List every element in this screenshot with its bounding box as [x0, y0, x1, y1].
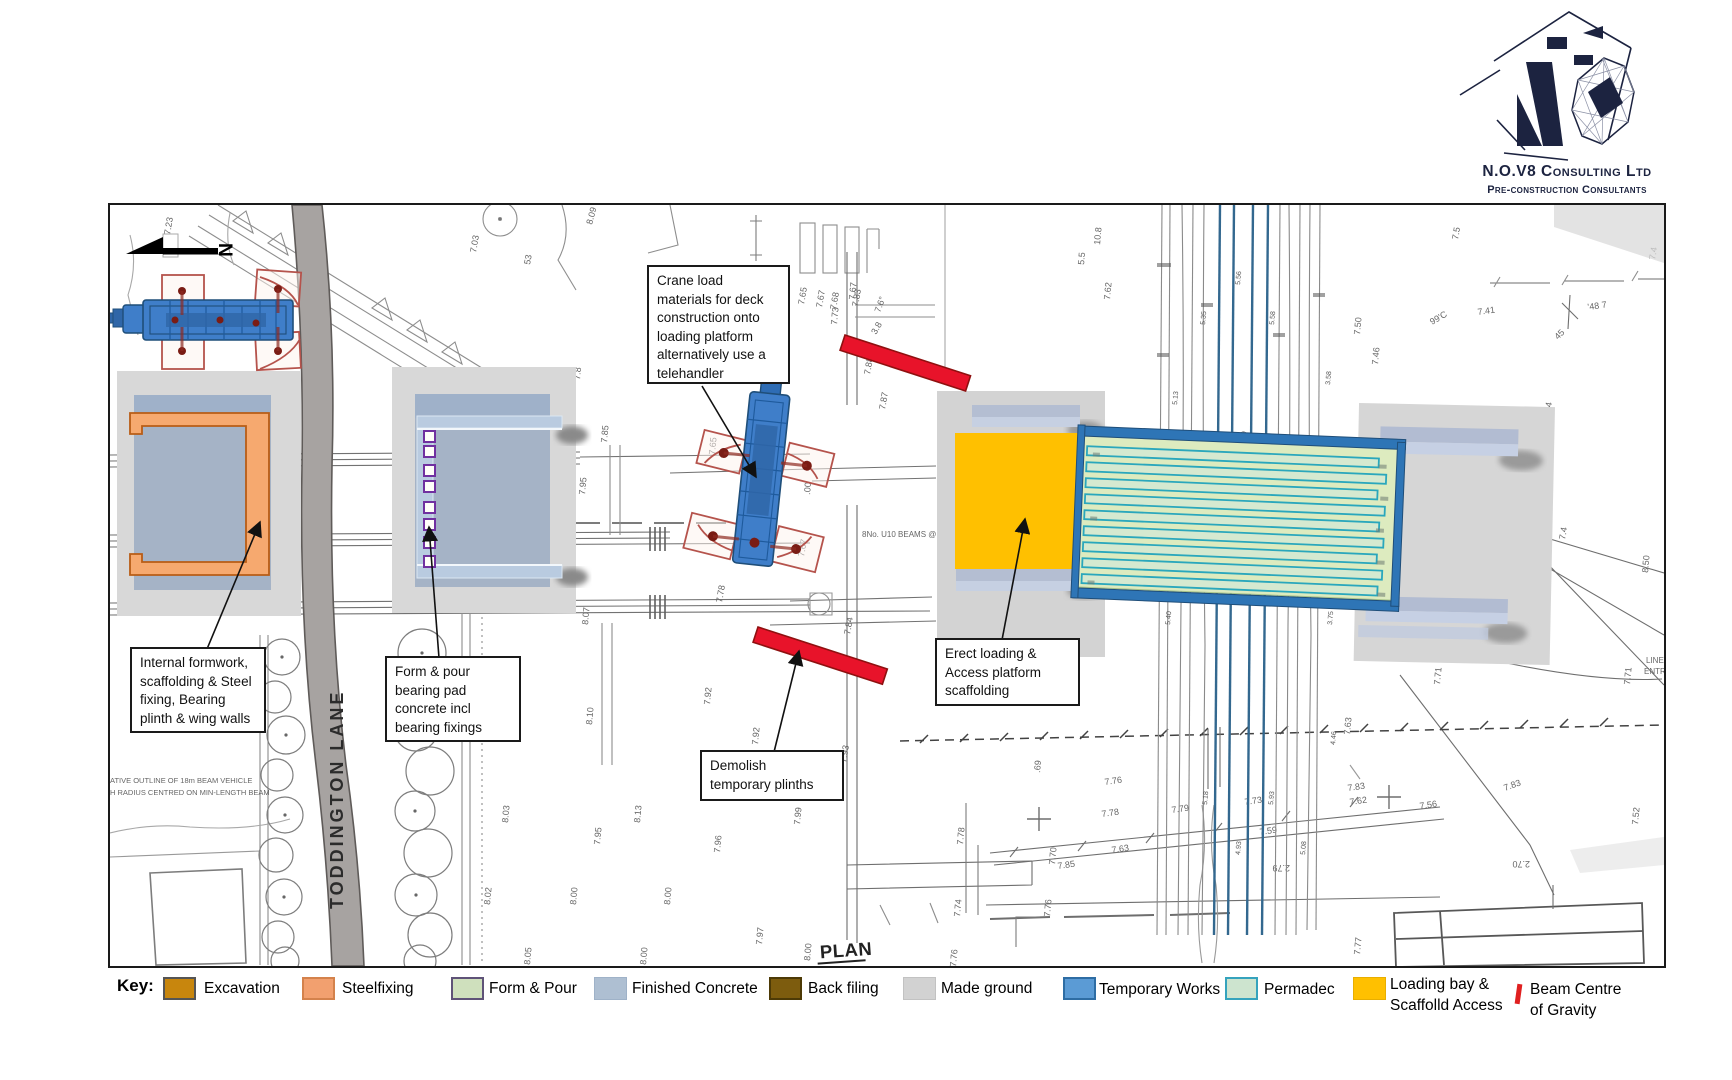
svg-text:7.78: 7.78	[955, 827, 966, 845]
svg-text:7.46: 7.46	[1370, 347, 1381, 365]
svg-text:7.85: 7.85	[1057, 859, 1076, 871]
svg-text:7.6°: 7.6°	[872, 295, 887, 314]
svg-text:5.40: 5.40	[1165, 611, 1173, 625]
svg-text:8.50: 8.50	[1640, 555, 1651, 573]
svg-text:7.83: 7.83	[1502, 777, 1522, 792]
svg-text:7.62: 7.62	[1102, 282, 1113, 300]
svg-text:7.73: 7.73	[1244, 795, 1263, 807]
svg-text:7.76: 7.76	[1042, 899, 1053, 917]
svg-text:45: 45	[1552, 327, 1566, 341]
svg-text:7.78: 7.78	[1101, 807, 1120, 819]
svg-text:7.99: 7.99	[792, 807, 803, 825]
svg-text:8.02: 8.02	[482, 887, 493, 905]
svg-text:8.13: 8.13	[632, 805, 643, 823]
svg-text:3.58: 3.58	[1325, 371, 1333, 385]
svg-text:7.76: 7.76	[1104, 775, 1123, 787]
svg-text:7.85: 7.85	[599, 425, 610, 443]
svg-text:8.00: 8.00	[568, 887, 579, 905]
svg-text:7.65: 7.65	[796, 286, 809, 305]
svg-text:5.93: 5.93	[1268, 791, 1276, 805]
svg-text:N.O.V8 Consulting Ltd: N.O.V8 Consulting Ltd	[1482, 163, 1651, 180]
svg-text:7.73: 7.73	[829, 307, 840, 325]
svg-text:3.75: 3.75	[1327, 611, 1335, 625]
svg-text:7.63: 7.63	[1111, 843, 1130, 855]
svg-text:LINE: LINE	[1646, 656, 1664, 665]
svg-text:5.35: 5.35	[1200, 311, 1208, 325]
svg-text:2.70: 2.70	[1512, 859, 1530, 869]
svg-text:7.67: 7.67	[847, 282, 858, 300]
svg-text:7.76: 7.76	[948, 949, 959, 966]
svg-text:Pre-construction Consultants: Pre-construction Consultants	[1487, 184, 1647, 196]
svg-text:7.95: 7.95	[592, 827, 603, 845]
svg-text:8.07: 8.07	[580, 607, 591, 625]
svg-text:7.4: 7.4	[1557, 526, 1569, 540]
svg-text:7.96: 7.96	[712, 835, 723, 853]
svg-text:7.03: 7.03	[468, 234, 481, 253]
svg-text:7.63: 7.63	[1342, 717, 1353, 735]
svg-text:8.00: 8.00	[802, 943, 813, 961]
svg-text:7.77: 7.77	[1352, 937, 1363, 955]
svg-text:7.71: 7.71	[1622, 667, 1633, 685]
svg-text:7.97: 7.97	[754, 927, 765, 945]
svg-text:5.18: 5.18	[1202, 791, 1210, 805]
svg-text:8.03: 8.03	[500, 805, 511, 823]
svg-text:'48 7: '48 7	[1587, 299, 1607, 312]
svg-text:7.5: 7.5	[1450, 226, 1462, 240]
svg-text:53: 53	[522, 254, 534, 266]
svg-text:7.92: 7.92	[702, 687, 713, 705]
svg-text:7.74: 7.74	[952, 899, 963, 917]
svg-text:5.08: 5.08	[1300, 841, 1308, 855]
svg-text:7.67: 7.67	[814, 289, 827, 308]
svg-text:8.00: 8.00	[638, 947, 649, 965]
svg-text:7.92: 7.92	[750, 727, 761, 745]
svg-text:8No. U10 BEAMS @ 9: 8No. U10 BEAMS @ 9	[862, 530, 944, 539]
svg-text:10.8: 10.8	[1092, 227, 1103, 245]
svg-text:ENTR: ENTR	[1644, 667, 1664, 676]
svg-text:5.5: 5.5	[1076, 252, 1087, 265]
svg-text:7.84: 7.84	[842, 616, 855, 635]
svg-text:8.09: 8.09	[584, 206, 598, 226]
svg-text:4.93: 4.93	[1235, 841, 1243, 855]
svg-text:3.8: 3.8	[869, 320, 884, 336]
svg-text:8.10: 8.10	[584, 707, 595, 725]
svg-text:7.87: 7.87	[877, 391, 890, 410]
svg-text:.69: .69	[1032, 760, 1043, 773]
svg-text:5.58: 5.58	[1269, 311, 1277, 325]
svg-text:N: N	[214, 243, 235, 257]
svg-text:H RADIUS CENTRED ON MIN-LENGTH: H RADIUS CENTRED ON MIN-LENGTH BEAM	[110, 788, 270, 797]
svg-text:7.95: 7.95	[577, 477, 588, 495]
svg-text:8.00: 8.00	[662, 887, 673, 905]
svg-text:7.71: 7.71	[1432, 667, 1443, 685]
svg-text:ATIVE OUTLINE OF 18m BEAM VEHI: ATIVE OUTLINE OF 18m BEAM VEHICLE	[110, 776, 252, 785]
svg-text:7.56: 7.56	[1419, 799, 1438, 811]
svg-text:5.56: 5.56	[1235, 271, 1243, 285]
svg-text:5.13: 5.13	[1172, 391, 1180, 405]
svg-text:7.79: 7.79	[1171, 803, 1190, 815]
svg-text:7.62: 7.62	[1349, 795, 1368, 807]
svg-text:99'C: 99'C	[1428, 309, 1449, 327]
svg-text:8.05: 8.05	[522, 947, 533, 965]
svg-text:7.50: 7.50	[1352, 317, 1363, 335]
svg-text:4.46: 4.46	[1330, 731, 1338, 745]
svg-text:7.83: 7.83	[1347, 781, 1366, 793]
svg-text:7.78: 7.78	[714, 584, 727, 603]
svg-text:TODDINGTON LANE: TODDINGTON LANE	[327, 690, 347, 909]
svg-text:7.41: 7.41	[1477, 305, 1496, 317]
svg-text:7.52: 7.52	[1630, 807, 1641, 825]
svg-text:7.23: 7.23	[162, 216, 175, 235]
svg-text:PLAN: PLAN	[819, 938, 873, 963]
